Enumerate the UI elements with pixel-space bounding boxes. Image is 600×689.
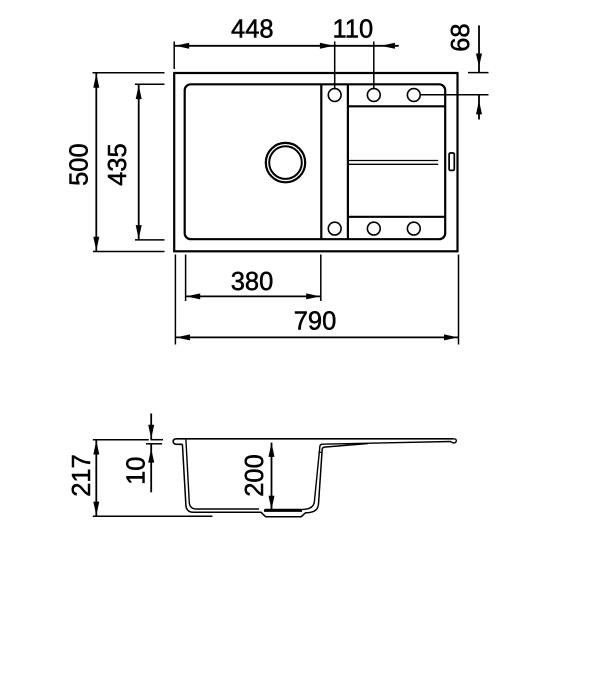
- svg-text:448: 448: [231, 15, 274, 43]
- svg-text:380: 380: [231, 268, 274, 296]
- svg-text:217: 217: [68, 454, 96, 497]
- svg-text:790: 790: [294, 307, 337, 335]
- svg-text:435: 435: [104, 143, 132, 186]
- svg-text:500: 500: [65, 143, 93, 186]
- svg-text:110: 110: [332, 15, 373, 43]
- svg-text:200: 200: [241, 454, 269, 497]
- svg-text:68: 68: [447, 23, 475, 51]
- svg-text:10: 10: [122, 457, 150, 485]
